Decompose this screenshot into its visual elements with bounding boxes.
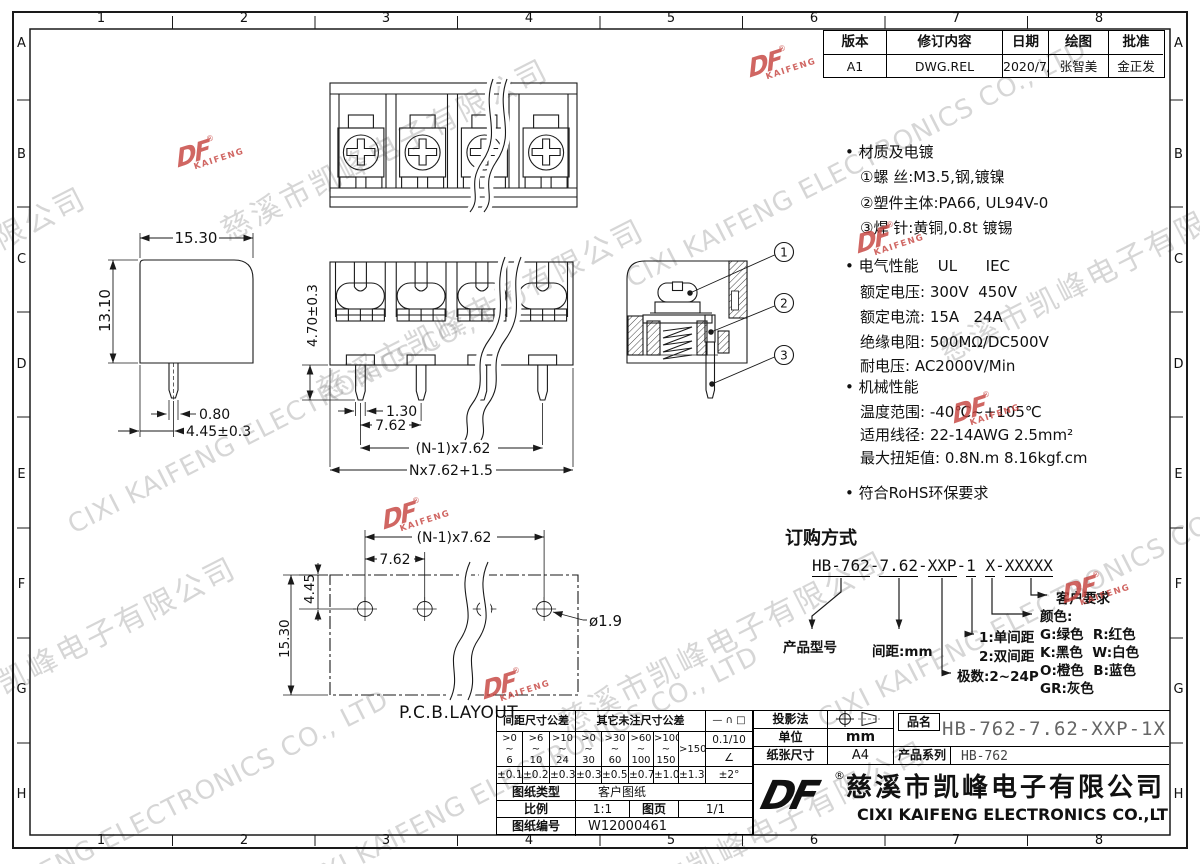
company-name-en: CIXI KAIFENG ELECTRONICS CO.,LTD (857, 805, 1169, 824)
kaifeng-logo-stamp: DF®KAIFENG (745, 36, 818, 86)
tolerance-value: ±0.20 (523, 767, 550, 784)
callout-2: 2 (780, 297, 788, 311)
title-block: 投影法 单位 mm 纸张尺寸 A4 品名 HB-762-7.62-XXP-1X … (753, 710, 1170, 835)
dim-front-pitch: 7.62 (375, 418, 406, 434)
df-logo-icon: DF (482, 668, 516, 704)
dim-front-span: (N-1)x7.62 (416, 441, 491, 457)
zone-col: 8 (1089, 833, 1109, 848)
tolerance-value: ±1.30 (679, 767, 706, 784)
tolerance-flatness-angle: 0.1/10 ∠ (706, 732, 752, 767)
spec-line: 适用线径: 22-14AWG 2.5mm² (860, 424, 1073, 445)
page-value: 1/1 (679, 801, 752, 818)
watermark-text: CIXI KAIFENG ELECTRONICS CO., LTD (63, 281, 534, 541)
zone-col: 1 (91, 833, 111, 848)
scale-value: 1:1 (576, 801, 630, 818)
ordering-label-double: 2:双间距 (979, 645, 1034, 665)
view-pcb-layout: (N-1)x7.62 7.62 4.45 15.30 ø1.9 (277, 530, 622, 700)
view-side: 15.30 13.10 0.80 4.45±0.3 (96, 229, 355, 440)
zone-col: 6 (804, 833, 824, 848)
watermark-text: 慈溪市凯峰电子有限公司 (308, 206, 651, 410)
tolerance-range: >100~150 (654, 732, 679, 767)
spec-line: 额定电流: 15A 24A (860, 306, 1003, 327)
kaifeng-logo-stamp: DF®KAIFENG (479, 658, 552, 708)
ordering-label-poles: 极数:2~24P (957, 665, 1039, 685)
product-series-cell: 产品系列 HB-762 (894, 747, 1169, 765)
tolerance-value: ±0.30 (550, 767, 576, 784)
tolerance-range: >6~10 (523, 732, 550, 767)
dim-side-height: 13.10 (96, 289, 114, 332)
kaifeng-logo-stamp: DF®KAIFENG (173, 126, 246, 176)
callout-1: 1 (780, 246, 788, 260)
revision-value: 金正发 (1109, 55, 1163, 78)
zone-row: D (13, 357, 30, 372)
doc-number-value: W12000461 (576, 818, 752, 836)
tolerance-range: >0~6 (497, 732, 523, 767)
watermark-text: 慈溪市凯峰电子有限公司 (0, 544, 243, 748)
zone-row: B (1170, 147, 1187, 162)
revision-value: 2020/7/4 (1003, 55, 1049, 78)
tolerance-range: >60~100 (629, 732, 654, 767)
ordering-title: 订购方式 (785, 524, 857, 550)
ordering-color-option: O:橙色 B:蓝色 (1040, 659, 1136, 679)
paper-size-value: A4 (828, 747, 894, 765)
company-logo-icon: DF (756, 773, 820, 819)
zone-col: 2 (234, 833, 254, 848)
projection-symbol-cell (828, 711, 894, 729)
zone-row: G (1170, 682, 1187, 697)
zone-row: B (13, 147, 30, 162)
product-series-value: HB-762 (961, 749, 1008, 764)
spec-title: • 材质及电镀 (845, 141, 934, 162)
tolerance-range: >30~60 (602, 732, 629, 767)
revision-header: 批准 (1109, 31, 1163, 55)
tolerance-value: ±1.00 (654, 767, 679, 784)
unit-value: mm (828, 729, 894, 747)
page-label: 图页 (630, 801, 679, 818)
dim-pcb-span: (N-1)x7.62 (417, 530, 492, 546)
spec-title: • 机械性能 (845, 376, 919, 397)
product-series-label: 产品系列 (894, 747, 951, 765)
dim-side-pin-offset: 4.45±0.3 (186, 424, 251, 440)
doc-type-label: 图纸类型 (497, 784, 576, 801)
zone-row: E (13, 467, 30, 482)
tolerance-range: >10~24 (550, 732, 576, 767)
company-name-zh: 慈溪市凯峰电子有限公司 (846, 767, 1165, 804)
zone-row: G (13, 682, 30, 697)
watermark-text: CIXI KAIFENG ELECTRONICS CO., LTD (0, 685, 394, 864)
spec-line: ②塑件主体:PA66, UL94V-0 (860, 192, 1048, 213)
registered-mark: ® (834, 769, 845, 782)
dim-pcb-height: 15.30 (277, 619, 293, 658)
zone-row: A (13, 36, 30, 51)
dim-front-total: Nx7.62+1.5 (409, 463, 493, 479)
zone-row: H (1170, 787, 1187, 802)
ordering-color-option: K:黑色 W:白色 (1040, 641, 1139, 661)
revision-header: 日期 (1003, 31, 1049, 55)
spec-line: 温度范围: -40℃~+105℃ (860, 401, 1042, 422)
dim-front-pin-width: 1.30 (386, 404, 417, 420)
dim-pcb-pitch: 7.62 (379, 552, 410, 568)
ordering-label-customer: 客户要求 (1056, 587, 1110, 607)
tolerance-range-last: >150 (679, 732, 706, 767)
zone-row: F (1170, 577, 1187, 592)
tolerance-value: ±0.30 (576, 767, 602, 784)
revision-value: DWG.REL (887, 55, 1003, 78)
spec-line: 耐电压: AC2000V/Min (860, 355, 1015, 376)
spec-title: • 电气性能 UL IEC (845, 255, 1010, 276)
tolerance-header-other: 其它未注尺寸公差 (576, 711, 706, 732)
view-section: 1 2 3 (627, 243, 794, 399)
zone-col: 4 (519, 11, 539, 26)
spec-line: ①螺 丝:M3.5,钢,镀镍 (860, 166, 1005, 187)
product-name-value: HB-762-7.62-XXP-1X (942, 718, 1166, 740)
spec-title: • 符合RoHS环保要求 (845, 482, 988, 503)
ordering-color-option: GR:灰色 (1040, 677, 1094, 697)
zone-col: 3 (376, 11, 396, 26)
zone-row: C (1170, 252, 1187, 267)
spec-line: 额定电压: 300V 450V (860, 281, 1017, 302)
zone-col: 1 (91, 11, 111, 26)
company-block: DF ® 慈溪市凯峰电子有限公司 CIXI KAIFENG ELECTRONIC… (754, 765, 1169, 834)
df-logo-icon: DF (176, 136, 210, 172)
product-name-label: 品名 (898, 713, 940, 731)
ordering-label-color: 颜色: (1040, 605, 1072, 625)
dim-pcb-offset: 4.45 (302, 574, 318, 604)
drawing-sheet: 慈溪市凯峰电子有限公司 CIXI KAIFENG ELECTRONICS CO.… (0, 0, 1200, 864)
zone-col: 3 (376, 833, 396, 848)
view-front: 4.70±0.3 1.30 7.62 (N-1)x7.62 Nx7.62+1.5 (302, 257, 573, 479)
df-logo-icon: DF (382, 498, 416, 534)
revision-header: 版本 (824, 31, 887, 55)
zone-col: 2 (234, 11, 254, 26)
ordering-label-model: 产品型号 (783, 636, 837, 656)
tolerance-range: >0~30 (576, 732, 602, 767)
doc-number-label: 图纸编号 (497, 818, 576, 836)
unit-label: 单位 (754, 729, 828, 747)
doc-type-value: 客户图纸 (576, 784, 752, 801)
dim-front-pin-length: 4.70±0.3 (305, 284, 321, 347)
callout-3: 3 (780, 349, 788, 363)
part-number: HB-762-7.62-XXP-1 X-XXXXX (812, 556, 1053, 575)
zone-row: C (13, 252, 30, 267)
ordering-color-option: G:绿色 R:红色 (1040, 623, 1136, 643)
zone-row: D (1170, 357, 1187, 372)
revision-table: 版本 修订内容 日期 绘图 批准 A1 DWG.REL 2020/7/4 张智美… (823, 30, 1165, 78)
tolerance-table: 间距尺寸公差 其它未注尺寸公差 — ∩ □ >0~6 >6~10 >10~24 … (496, 710, 753, 835)
tolerance-value: ±0.70 (629, 767, 654, 784)
zone-row: A (1170, 36, 1187, 51)
dim-side-pin-width: 0.80 (199, 407, 230, 423)
tolerance-header-pitch: 间距尺寸公差 (497, 711, 576, 732)
zone-col: 8 (1089, 11, 1109, 26)
zone-col: 7 (946, 11, 966, 26)
revision-value: 张智美 (1049, 55, 1109, 78)
spec-line: 绝缘电阻: 500MΩ/DC500V (860, 331, 1049, 352)
paper-size-label: 纸张尺寸 (754, 747, 828, 765)
zone-row: F (13, 577, 30, 592)
df-logo-icon: DF (748, 46, 782, 82)
product-name-cell: 品名 HB-762-7.62-XXP-1X (894, 711, 1169, 747)
view-top-plan (330, 79, 577, 212)
projection-label: 投影法 (754, 711, 828, 729)
revision-header: 绘图 (1049, 31, 1109, 55)
zone-row: H (13, 787, 30, 802)
dim-side-width: 15.30 (175, 229, 218, 247)
spec-line: 最大扭矩值: 0.8N.m 8.16kgf.cm (860, 447, 1087, 468)
revision-header: 修订内容 (887, 31, 1003, 55)
tolerance-value: ±0.50 (602, 767, 629, 784)
zone-row: E (1170, 467, 1187, 482)
watermark-text: 慈溪市凯峰电子有限公司 (0, 174, 93, 378)
tolerance-symbols: — ∩ □ (706, 711, 752, 732)
scale-label: 比例 (497, 801, 576, 818)
dim-pcb-hole: ø1.9 (589, 612, 622, 630)
watermark-text: CIXI KAIFENG ELECTRONICS CO., LTD (813, 475, 1200, 735)
zone-col: 6 (804, 11, 824, 26)
zone-col: 7 (946, 833, 966, 848)
tolerance-value: ±0.15 (497, 767, 523, 784)
spec-line: ③焊 针:黄铜,0.8t 镀锡 (860, 217, 1013, 238)
tolerance-angle-value: ±2° (706, 767, 752, 784)
ordering-label-pitch: 间距:mm (872, 640, 933, 660)
watermark-text: 慈溪市凯峰电子有限公司 (212, 46, 555, 250)
ordering-label-single: 1:单间距 (979, 626, 1034, 646)
revision-value: A1 (824, 55, 887, 78)
zone-col: 5 (661, 11, 681, 26)
kaifeng-logo-stamp: DF®KAIFENG (379, 488, 452, 538)
